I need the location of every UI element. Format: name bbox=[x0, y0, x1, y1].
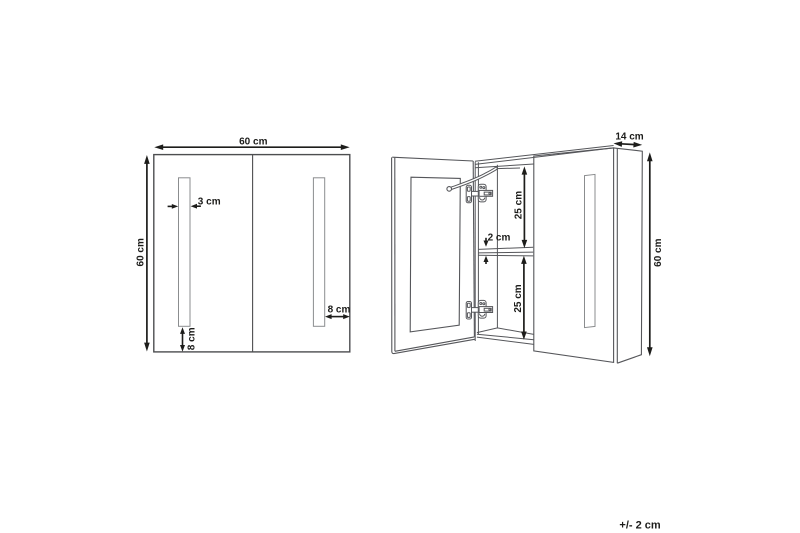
svg-text:2 cm: 2 cm bbox=[488, 233, 511, 244]
svg-text:25 cm: 25 cm bbox=[513, 191, 524, 219]
svg-text:+/- 2 cm: +/- 2 cm bbox=[619, 520, 660, 532]
svg-text:60 cm: 60 cm bbox=[653, 238, 664, 266]
svg-text:3 cm: 3 cm bbox=[198, 196, 221, 207]
svg-text:14 cm: 14 cm bbox=[615, 132, 643, 143]
svg-text:8 cm: 8 cm bbox=[187, 327, 198, 350]
svg-text:60 cm: 60 cm bbox=[135, 238, 146, 266]
svg-text:25 cm: 25 cm bbox=[513, 284, 524, 312]
svg-text:60 cm: 60 cm bbox=[239, 137, 267, 148]
svg-text:8 cm: 8 cm bbox=[328, 304, 351, 315]
